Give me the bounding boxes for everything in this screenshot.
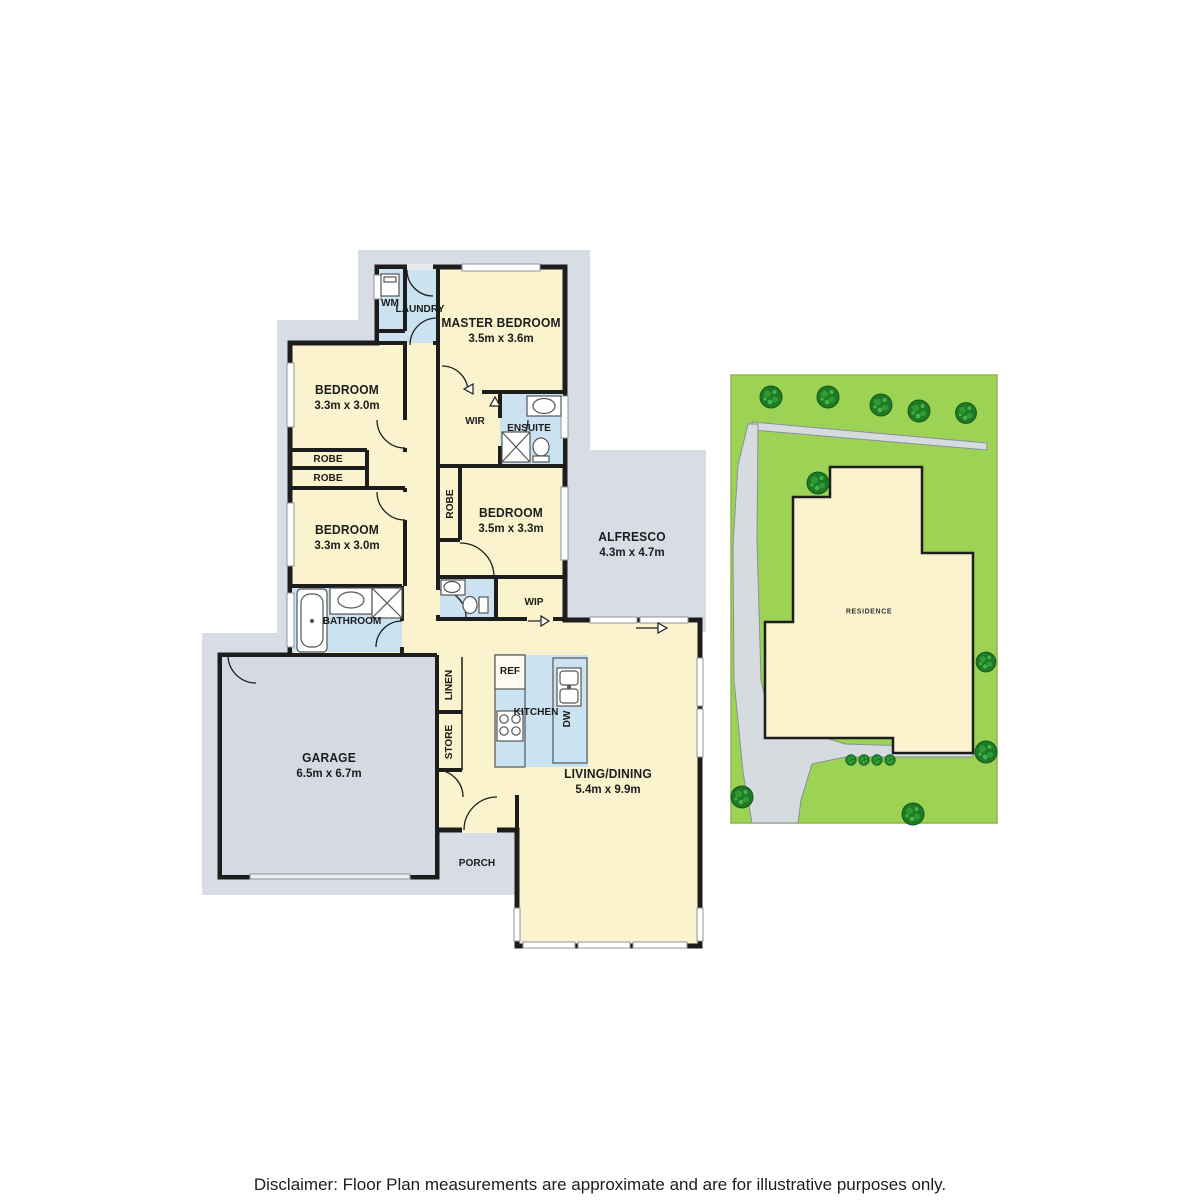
- disclaimer-text: Disclaimer: Floor Plan measurements are …: [0, 1175, 1200, 1195]
- site-plan: [731, 375, 997, 825]
- fridge-icon: [495, 655, 525, 689]
- floor-plan-drawing: [0, 0, 1200, 1200]
- toilet-icon: [533, 438, 549, 456]
- floor-plan-page: MASTER BEDROOM 3.5m x 3.6m BEDROOM 3.3m …: [0, 0, 1200, 1200]
